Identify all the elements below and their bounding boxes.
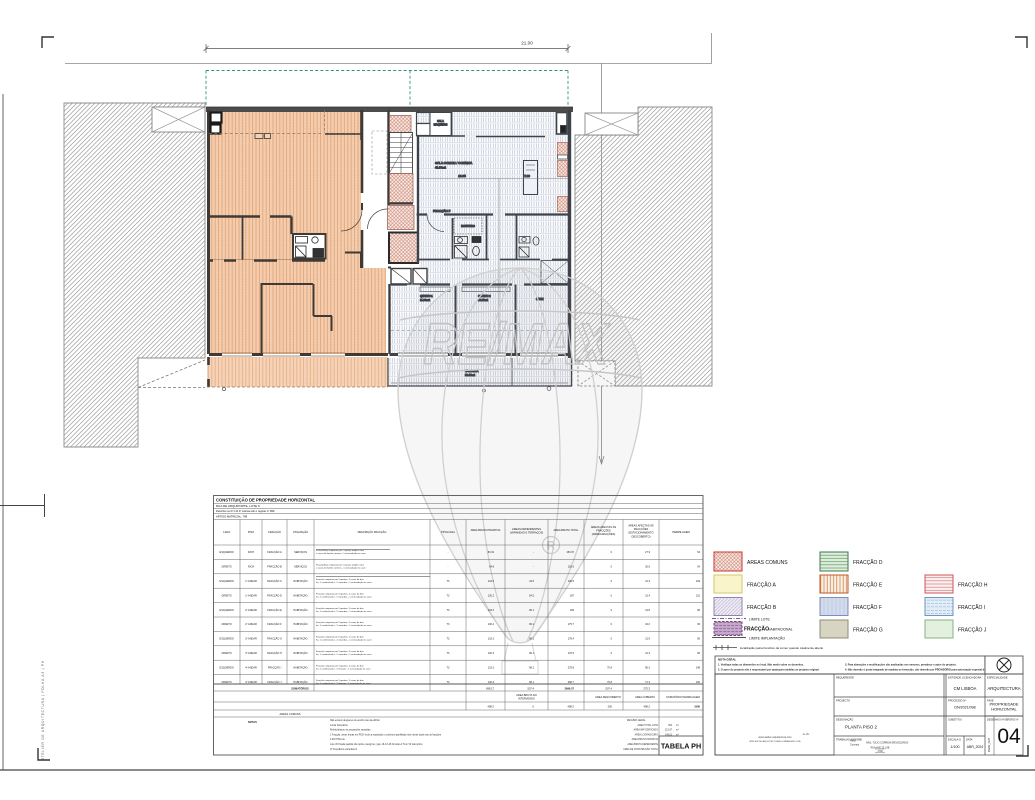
- svg-text:SALA COMUM / COZINHA: SALA COMUM / COZINHA: [435, 161, 473, 165]
- svg-text:150.6: 150.6: [568, 566, 575, 569]
- svg-text:FRACÇÃO E: FRACÇÃO E: [267, 609, 282, 612]
- svg-text:HABITAÇÃO: HABITAÇÃO: [293, 638, 307, 641]
- svg-text:LIMITE IMPLANTAÇÃO: LIMITE IMPLANTAÇÃO: [749, 636, 785, 641]
- svg-text:507.4: 507.4: [606, 687, 613, 691]
- svg-text:FRACÇÃO F: FRACÇÃO F: [433, 208, 451, 213]
- svg-text:Fracção composta por 3 quartos: Fracção composta por 3 quartos, 2 casas …: [316, 621, 364, 624]
- svg-text:Descrito na 2ª C.R.P. Lisboa s: Descrito na 2ª C.R.P. Lisboa sob o regis…: [216, 509, 275, 513]
- svg-text:1. Verifique todas as dimensõe: 1. Verifique todas as dimensões no local…: [718, 664, 804, 667]
- svg-text:FRACÇÃO F: FRACÇÃO F: [853, 604, 882, 611]
- svg-text:FRACÇÃO G: FRACÇÃO G: [853, 627, 883, 634]
- svg-text:133.3: 133.3: [488, 580, 495, 583]
- svg-text:AREAS DEPENDENTES: AREAS DEPENDENTES: [512, 527, 541, 531]
- svg-text:213.87: 213.87: [665, 730, 673, 732]
- svg-text:196: 196: [570, 609, 575, 612]
- svg-text:PRAD_OUT: PRAD_OUT: [987, 738, 991, 753]
- svg-text:FRACÇÃO A: FRACÇÃO A: [267, 551, 282, 554]
- svg-text:3º ANDAR: 3º ANDAR: [245, 637, 257, 641]
- svg-text:R/CH: R/CH: [248, 551, 254, 554]
- svg-text:ARQ. TULIO CORREIA (REV2021REV: ARQ. TULIO CORREIA (REV2021REV): [866, 742, 909, 745]
- svg-text:SERVIÇOS: SERVIÇOS: [294, 566, 307, 569]
- svg-text:ESPECIALIDADE: ESPECIALIDADE: [987, 676, 1008, 680]
- svg-text:200: 200: [608, 705, 613, 709]
- svg-text:31.3: 31.3: [645, 580, 650, 583]
- svg-text:507.4: 507.4: [528, 687, 535, 691]
- svg-text:FRACÇÃO H: FRACÇÃO H: [958, 582, 988, 589]
- svg-text:FRACÇÃO H: FRACÇÃO H: [267, 652, 282, 655]
- svg-text:FRACÇÃO J: FRACÇÃO J: [267, 681, 282, 684]
- svg-text:178.4: 178.4: [568, 638, 575, 641]
- svg-text:AREA DE CONSTRUÇÃO TOTAL: AREA DE CONSTRUÇÃO TOTAL: [623, 748, 658, 751]
- svg-text:SALA: SALA: [437, 119, 444, 123]
- svg-text:LADO: LADO: [223, 530, 230, 534]
- svg-text:16.05: 16.05: [458, 174, 466, 178]
- svg-text:1/100: 1/100: [951, 745, 960, 749]
- svg-text:HABITACIONAL: HABITACIONAL: [768, 628, 793, 632]
- svg-text:ABR_2024: ABR_2024: [967, 745, 984, 749]
- svg-text:QUARTO 1: QUARTO 1: [420, 295, 433, 298]
- svg-text:130.3: 130.3: [488, 681, 495, 684]
- svg-text:175.7: 175.7: [568, 623, 575, 626]
- svg-text:3. Para alterações e modificaç: 3. Para alterações e modificações são an…: [845, 664, 957, 667]
- svg-text:REQUERENTE: REQUERENTE: [836, 676, 854, 680]
- svg-text:70.8: 70.8: [607, 666, 612, 669]
- svg-text:11.90m2: 11.90m2: [420, 298, 430, 302]
- svg-text:21.00: 21.00: [521, 41, 533, 46]
- svg-text:ho, 1 cozinha/sala c. 2 varand: ho, 1 cozinha/sala c. 2 varandas - 1 arr…: [316, 653, 372, 656]
- svg-text:HABITAÇÃO: HABITAÇÃO: [293, 652, 307, 655]
- svg-text:133.3: 133.3: [488, 666, 495, 669]
- svg-text:AREA BRUTA PRIVATIVA: AREA BRUTA PRIVATIVA: [471, 528, 501, 532]
- svg-text:2. O autor do projecto não é r: 2. O autor do projecto não é responsável…: [718, 669, 820, 672]
- svg-text:FRACÇÃO D: FRACÇÃO D: [853, 559, 883, 566]
- svg-text:PROJECTO: PROJECTO: [836, 699, 850, 703]
- svg-text:R/CH: R/CH: [248, 566, 254, 569]
- svg-text:Fracção composta por 3 quartos: Fracção composta por 3 quartos, 2 casas …: [316, 607, 364, 610]
- svg-text:2º ANDAR: 2º ANDAR: [245, 622, 257, 626]
- svg-text:498.2: 498.2: [644, 705, 651, 709]
- svg-text:ENTIDADE LICENCIADORA: ENTIDADE LICENCIADORA: [948, 676, 982, 680]
- svg-text:FRACÇÃO D: FRACÇÃO D: [267, 594, 282, 597]
- svg-text:FRACÇÃO G: FRACÇÃO G: [267, 638, 282, 641]
- svg-text:2º ANDAR: 2º ANDAR: [245, 608, 257, 612]
- svg-text:ho, 1 cozinha/sala c. 2 varand: ho, 1 cozinha/sala c. 2 varandas - 1 arr…: [316, 581, 372, 584]
- svg-text:AREAS AFECTAS ÀS: AREAS AFECTAS ÀS: [591, 525, 617, 529]
- svg-text:FRACÇÃO A: FRACÇÃO A: [747, 582, 777, 589]
- svg-text:110: 110: [696, 594, 701, 597]
- svg-text:85.3: 85.3: [645, 666, 650, 669]
- svg-text:153.97: 153.97: [566, 551, 574, 554]
- svg-text:44.5: 44.5: [529, 580, 534, 583]
- svg-text:31.8: 31.8: [645, 609, 650, 612]
- svg-text:HABITAÇÃO: HABITAÇÃO: [293, 594, 307, 597]
- svg-text:AREA COBERTA: AREA COBERTA: [635, 695, 655, 699]
- svg-text:95.1: 95.1: [529, 638, 534, 641]
- svg-text:31.9: 31.9: [645, 638, 650, 641]
- svg-text:INTERVENDO: INTERVENDO: [518, 697, 535, 701]
- svg-text:FRACÇÃO I: FRACÇÃO I: [268, 666, 282, 669]
- svg-text:ESQUERDO: ESQUERDO: [220, 638, 234, 641]
- svg-text:96.1: 96.1: [529, 652, 534, 655]
- svg-text:AREAS COMUNS: AREAS COMUNS: [747, 560, 788, 566]
- svg-text:(VARANDAS E TERRAÇOS): (VARANDAS E TERRAÇOS): [510, 531, 543, 535]
- svg-text:41.90m2: 41.90m2: [435, 166, 446, 170]
- svg-text:MAQUINAS: MAQUINAS: [434, 123, 448, 127]
- svg-text:ho, 1 cozinha/sala c. 2 varand: ho, 1 cozinha/sala c. 2 varandas - 1 arr…: [316, 639, 372, 642]
- svg-text:NOTAS: NOTAS: [248, 720, 257, 724]
- svg-text:96.1: 96.1: [529, 609, 534, 612]
- svg-text:AREA TOTAL LOTE: AREA TOTAL LOTE: [638, 724, 659, 727]
- svg-text:Fracção/loja composta por 1 es: Fracção/loja composta por 1 espaço amplo…: [316, 564, 365, 567]
- svg-text:AREA BRUTA DO: AREA BRUTA DO: [516, 693, 537, 697]
- svg-text:www.atelier-arquitectura.com: www.atelier-arquitectura.com: [758, 735, 791, 739]
- svg-text:31.4: 31.4: [645, 594, 650, 597]
- svg-text:Fracção composta por 3 quartos: Fracção composta por 3 quartos, 2 casas …: [316, 578, 364, 581]
- svg-text:HABITAÇÃO: HABITAÇÃO: [293, 609, 307, 612]
- svg-text:100: 100: [696, 681, 701, 684]
- svg-text:4. Não deverão ó porta integra: 4. Não deverão ó porta integrado de made…: [845, 669, 993, 672]
- svg-text:CONSTITUIÇÃO DE PROPRIEDADE HO: CONSTITUIÇÃO DE PROPRIEDADE HORIZONTAL: [216, 498, 315, 503]
- svg-text:54.5: 54.5: [529, 594, 534, 597]
- svg-text:133.3: 133.3: [488, 609, 495, 612]
- svg-text:FRACÇÃO B: FRACÇÃO B: [267, 566, 282, 569]
- svg-text:LIMITE LOTE: LIMITE LOTE: [749, 618, 770, 622]
- svg-text:ESQUERDO: ESQUERDO: [220, 609, 234, 612]
- svg-text:DIREITO: DIREITO: [222, 566, 232, 569]
- svg-text:ATELIER DE ARQUITECTURA | FOLH: ATELIER DE ARQUITECTURA | FOLHA A3 | PH: [41, 660, 45, 760]
- svg-text:130.2: 130.2: [488, 594, 495, 597]
- svg-text:FRACÇÃO C: FRACÇÃO C: [267, 580, 282, 583]
- svg-text:98.2: 98.2: [529, 666, 534, 669]
- svg-text:ESCALA-S: ESCALA-S: [948, 738, 961, 742]
- svg-text:275.3: 275.3: [644, 687, 651, 691]
- svg-text:m²: m²: [676, 724, 679, 727]
- svg-text:FRACÇÃO I: FRACÇÃO I: [958, 604, 985, 611]
- svg-text:ho, 1 cozinha/sala c. 2 varand: ho, 1 cozinha/sala c. 2 varandas - 1 arr…: [316, 624, 372, 627]
- svg-text:HABITAÇÃO: HABITAÇÃO: [293, 623, 307, 626]
- svg-text:1º ANDAR: 1º ANDAR: [245, 593, 257, 597]
- svg-text:ho, 1 cozinha/sala c. 2 terraç: ho, 1 cozinha/sala c. 2 terraços - 1 arr…: [316, 682, 371, 685]
- svg-text:HABITAÇÃO: HABITAÇÃO: [293, 666, 307, 669]
- svg-text:Juntar facturários: Juntar facturários: [330, 724, 349, 727]
- svg-text:FRACÇÃO B: FRACÇÃO B: [747, 604, 777, 611]
- svg-text:190.5: 190.5: [568, 580, 575, 583]
- svg-text:localização painel fenólico da: localização painel fenólico da comer qua…: [740, 646, 824, 650]
- svg-text:A+ Rx: A+ Rx: [803, 733, 810, 736]
- svg-text:DIREITO: DIREITO: [222, 681, 232, 684]
- svg-text:SERVIÇOS: SERVIÇOS: [294, 551, 307, 554]
- svg-text:AREA BRUTA PRIVATIVA: AREA BRUTA PRIVATIVA: [632, 738, 659, 741]
- svg-text:CM LISBOA: CM LISBOA: [954, 686, 977, 691]
- svg-text:HORIZONTAL: HORIZONTAL: [991, 707, 1017, 712]
- svg-text:1º ANDAR: 1º ANDAR: [245, 579, 257, 583]
- svg-text:278.8: 278.8: [568, 666, 575, 669]
- svg-text:498.2: 498.2: [488, 705, 495, 709]
- svg-text:ARQUITECTURA: ARQUITECTURA: [987, 686, 1020, 691]
- svg-text:Contrato: Contrato: [850, 744, 860, 747]
- svg-text:NOTA GERAL: NOTA GERAL: [718, 658, 736, 662]
- svg-text:4º ANDAR: 4º ANDAR: [245, 665, 257, 669]
- svg-text:ATELIER DE ARQUITECTURA E URBA: ATELIER DE ARQUITECTURA E URBANISMO LDA: [749, 740, 801, 743]
- svg-text:AREAS COMUNS: AREAS COMUNS: [279, 712, 300, 716]
- svg-text:(ESTACIONAMENTO: (ESTACIONAMENTO: [629, 531, 654, 535]
- svg-text:AREA LOGRADOURO: AREA LOGRADOURO: [635, 733, 659, 736]
- svg-text:FRACÇÃO J: FRACÇÃO J: [958, 627, 987, 634]
- svg-text:04: 04: [997, 725, 1021, 748]
- svg-text:27.9: 27.9: [645, 551, 650, 554]
- svg-text:AREA BRUTA TOTAL: AREA BRUTA TOTAL: [554, 528, 579, 532]
- svg-text:1000: 1000: [694, 705, 700, 709]
- svg-text:s casas de banho comuns - 1 ar: s casas de banho comuns - 1 arrecadação …: [316, 552, 366, 555]
- svg-text:Refeito/alterou-se proporções: Refeito/alterou-se proporções varandas: [330, 729, 371, 732]
- svg-text:ho, 1 cozinha/sala c. 2 terraç: ho, 1 cozinha/sala c. 2 terraços - 1 arr…: [316, 667, 371, 670]
- svg-text:4º ANDAR: 4º ANDAR: [245, 680, 257, 684]
- svg-text:98.1: 98.1: [529, 681, 534, 684]
- svg-text:RESUMO GERAL: RESUMO GERAL: [627, 719, 646, 722]
- svg-text:268.7: 268.7: [568, 681, 575, 684]
- svg-text:PROCESSO Nº: PROCESSO Nº: [948, 699, 966, 703]
- svg-text:109: 109: [696, 580, 701, 583]
- svg-text:ho, 1 cozinha/sala c. 2 varand: ho, 1 cozinha/sala c. 2 varandas - 1 arr…: [316, 595, 372, 598]
- svg-text:TABELA PH: TABELA PH: [661, 742, 701, 751]
- svg-text:Não existem alugueres de acord: Não existem alugueres de acordo nas da e…: [330, 719, 381, 722]
- svg-text:133.3: 133.3: [488, 638, 495, 641]
- svg-text:31.3: 31.3: [645, 652, 650, 655]
- svg-text:Fracção composta por 3 quartos: Fracção composta por 3 quartos, 2 casas …: [316, 592, 364, 595]
- svg-text:AREAS AFECTAS ÀS: AREAS AFECTAS ÀS: [628, 524, 654, 528]
- svg-text:32.0: 32.0: [645, 623, 650, 626]
- svg-text:71.3: 71.3: [645, 681, 650, 684]
- svg-text:Fracção composta por 3 quartos: Fracção composta por 3 quartos, 2 casas …: [316, 679, 364, 682]
- svg-text:HABITAÇÃO: HABITAÇÃO: [293, 580, 307, 583]
- svg-text:498.2: 498.2: [568, 705, 575, 709]
- svg-text:ROUPEIRO: ROUPEIRO: [461, 224, 475, 228]
- svg-text:Fracção composta por 3 quartos: Fracção composta por 3 quartos, 2 casas …: [316, 650, 364, 653]
- svg-text:PISO: PISO: [248, 530, 254, 534]
- svg-text:7.20: 7.20: [524, 174, 530, 178]
- svg-text:RUA DE ARQUIPORTE, LOTE 6: RUA DE ARQUIPORTE, LOTE 6: [216, 504, 260, 508]
- svg-text:PLANTA PISO 2: PLANTA PISO 2: [845, 725, 877, 730]
- svg-text:130.2: 130.2: [488, 623, 495, 626]
- svg-text:DIREITO: DIREITO: [222, 623, 232, 626]
- svg-text:FRACÇÃO E: FRACÇÃO E: [853, 582, 883, 589]
- svg-text:Fracção composta por 3 quartos: Fracção composta por 3 quartos, 2 casas …: [316, 664, 364, 667]
- svg-text:83.32: 83.32: [488, 551, 495, 554]
- svg-text:AREA DESCOBERTO: AREA DESCOBERTO: [595, 695, 621, 699]
- svg-text:DESCOBERTO): DESCOBERTO): [632, 534, 651, 538]
- svg-text:RE/MAX: RE/MAX: [423, 312, 610, 377]
- svg-text:DATA: DATA: [966, 738, 973, 742]
- svg-text:187: 187: [570, 594, 575, 597]
- svg-text:1 Fracção, áreas brutas em R/C: 1 Fracção, áreas brutas em R/CH inclui a…: [330, 733, 442, 736]
- svg-text:m²: m²: [676, 729, 679, 732]
- svg-text:ARTIGO MATRICIAL: 798: ARTIGO MATRICIAL: 798: [216, 515, 248, 519]
- svg-text:3º ANDAR: 3º ANDAR: [245, 651, 257, 655]
- svg-text:TIPOLOGIA: TIPOLOGIA: [441, 530, 455, 534]
- svg-text:FRACÇÃO: FRACÇÃO: [744, 626, 769, 633]
- svg-text:SUBSTITUI: SUBSTITUI: [948, 718, 962, 722]
- svg-text:698.17: 698.17: [486, 687, 494, 691]
- svg-text:148: 148: [696, 666, 701, 669]
- svg-text:s casas de banho comuns - 1 ar: s casas de banho comuns - 1 arrecadação …: [316, 567, 366, 570]
- svg-text:ho, 1 cozinha/sala c. 2 varand: ho, 1 cozinha/sala c. 2 varandas - 1 arr…: [316, 610, 372, 613]
- svg-text:2696.57: 2696.57: [565, 687, 575, 691]
- svg-text:ESQUERDO: ESQUERDO: [220, 580, 234, 583]
- svg-text:DIREITO: DIREITO: [222, 594, 232, 597]
- svg-text:ESQUERDO: ESQUERDO: [220, 666, 234, 669]
- svg-text:ESQUERDO: ESQUERDO: [220, 551, 234, 554]
- svg-text:96.1: 96.1: [529, 623, 534, 626]
- svg-text:130.3: 130.3: [488, 652, 495, 655]
- svg-text:DIREITO: DIREITO: [222, 652, 232, 655]
- svg-text:30.6: 30.6: [645, 566, 650, 569]
- svg-text:HABITAÇÃO: HABITAÇÃO: [293, 681, 307, 684]
- svg-text:PERMILAGEM: PERMILAGEM: [672, 530, 689, 534]
- svg-text:Lote VIII fixada padrão não óp: Lote VIII fixada padrão não óptico, desg…: [330, 743, 423, 746]
- svg-text:2 R/CH BL.Fte: 2 R/CH BL.Fte: [330, 738, 346, 741]
- svg-text:176.5: 176.5: [568, 652, 575, 655]
- svg-text:94.8: 94.8: [489, 566, 494, 569]
- svg-text:DN/2021/098: DN/2021/098: [954, 706, 975, 710]
- svg-text:AREA IMP. EDIFICADO: AREA IMP. EDIFICADO: [634, 729, 659, 732]
- svg-text:AREA BRUTA DEPENDENTE: AREA BRUTA DEPENDENTE: [627, 743, 658, 746]
- svg-text:FRACÇÃO F: FRACÇÃO F: [267, 623, 282, 626]
- svg-text:70.8: 70.8: [607, 681, 612, 684]
- svg-text:Refoi: Refoi: [850, 740, 856, 743]
- svg-text:Fracção composta por 3 quartos: Fracção composta por 3 quartos, 2 casas …: [316, 636, 364, 639]
